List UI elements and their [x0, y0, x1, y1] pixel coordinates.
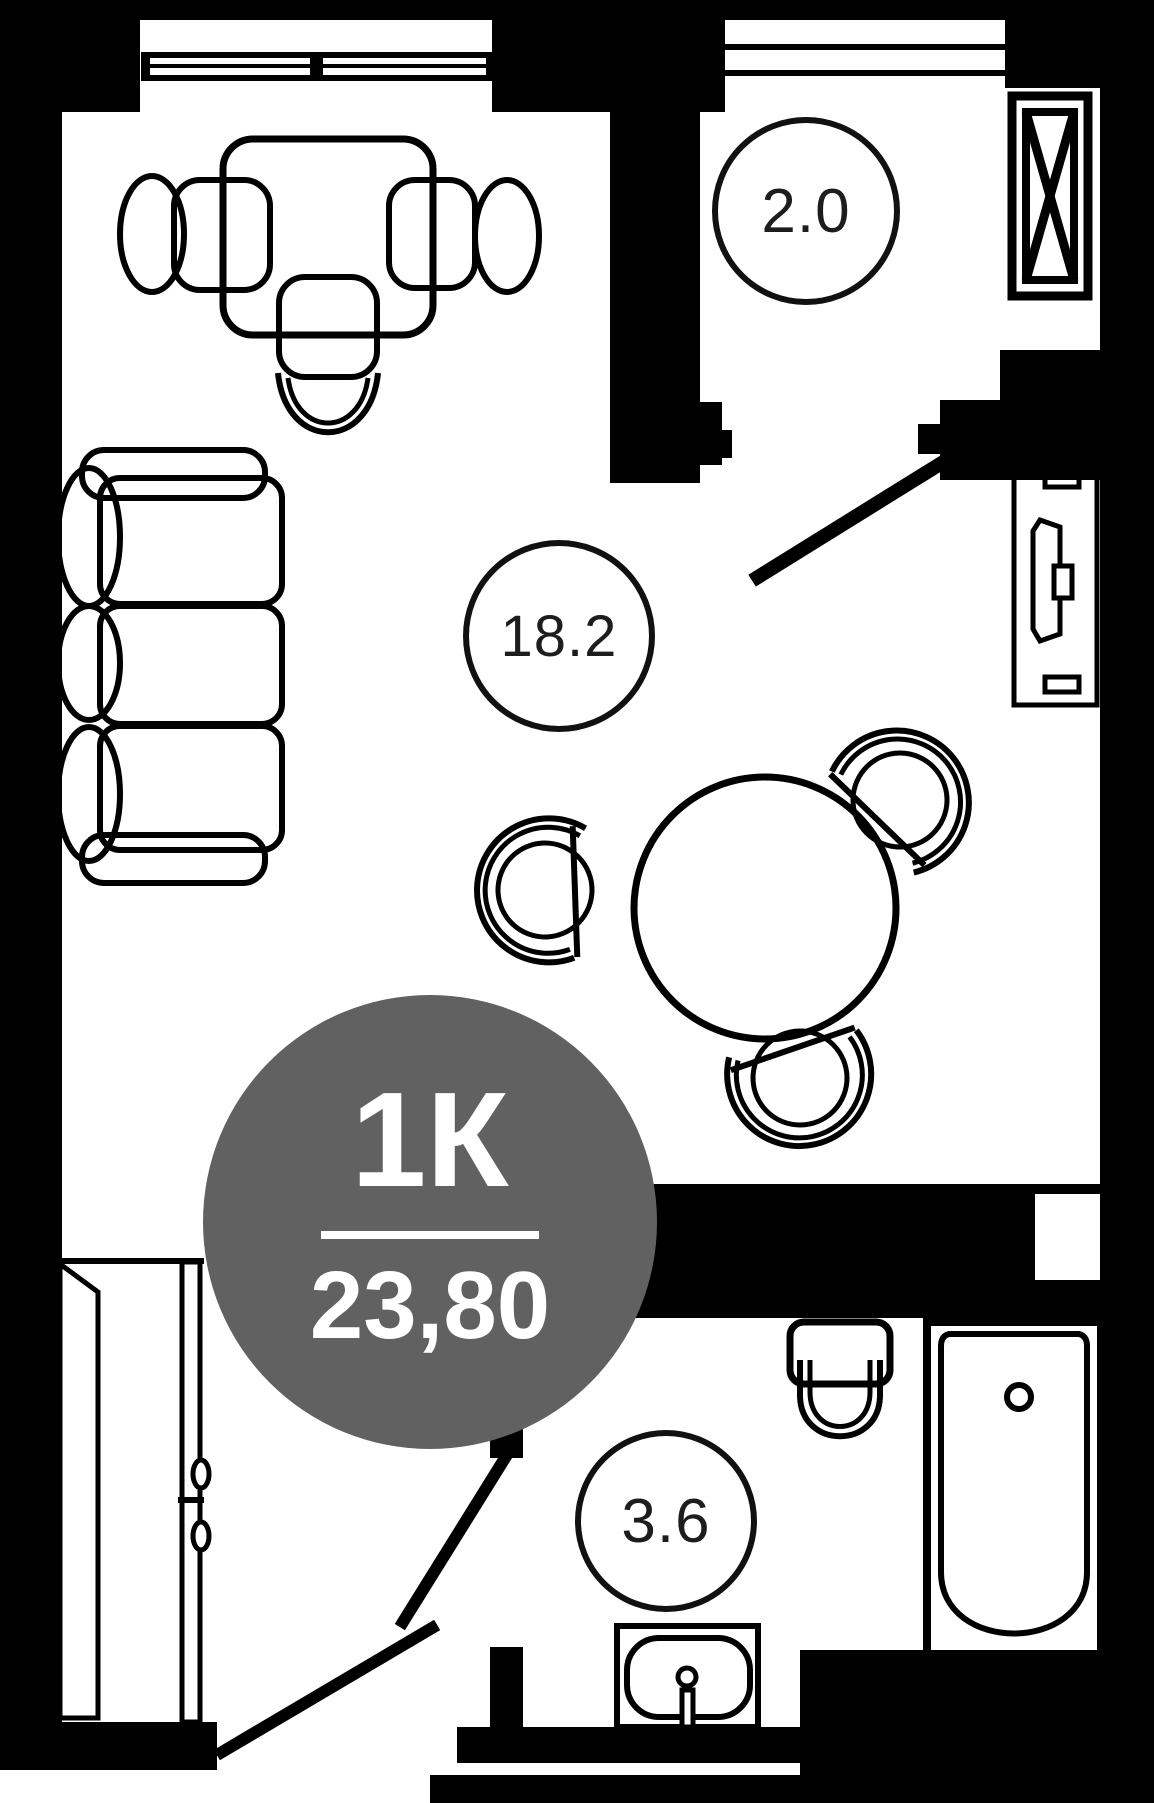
wall-above-window — [140, 0, 495, 20]
wardrobe-icon — [58, 1258, 209, 1722]
wall-top-left-corner — [0, 0, 140, 112]
badge-divider — [321, 1231, 539, 1239]
bathroom-area-value: 3.6 — [621, 1486, 710, 1557]
balcony-area-value: 2.0 — [761, 176, 850, 247]
bathroom-area-label: 3.6 — [575, 1430, 757, 1612]
sofa-icon — [58, 450, 282, 883]
wall-bathroom-top-lower — [600, 1280, 1100, 1318]
balcony-area-label: 2.0 — [712, 117, 900, 305]
sink-icon — [617, 1626, 758, 1727]
bathtub-icon — [927, 1322, 1101, 1663]
wall-balcony-door-knob — [918, 424, 942, 454]
wall-divider-notch — [722, 430, 732, 458]
wall-bottom-left — [0, 1722, 217, 1770]
balcony-door-leaf — [758, 464, 940, 577]
wall-left — [0, 110, 62, 1770]
wall-divider-step — [700, 402, 722, 465]
wall-balcony-parapet-top — [725, 0, 1005, 20]
wall-bathroom-top-edge-line — [1035, 1184, 1100, 1194]
floor-plan: 2.0 18.2 3.6 1К 23,80 — [0, 0, 1154, 1803]
apartment-badge: 1К 23,80 — [203, 995, 657, 1449]
entry-door-leaf — [222, 1628, 432, 1752]
living-room-area-value: 18.2 — [501, 603, 618, 670]
balcony-window — [725, 44, 1005, 76]
toilet-icon — [790, 1322, 890, 1436]
apartment-type: 1К — [203, 1065, 657, 1215]
wall-divider-living-balcony — [610, 0, 700, 483]
wall-bottom-middle — [457, 1727, 800, 1763]
living-room-area-label: 18.2 — [463, 540, 655, 732]
ventilation-shaft-icon — [1012, 96, 1088, 296]
wall-bathroom-top-upper — [640, 1184, 1035, 1280]
apartment-total-area: 23,80 — [203, 1251, 657, 1361]
wall-bottom-right-mass — [800, 1650, 1154, 1803]
wall-right — [1100, 0, 1154, 1803]
tv-console-icon — [1014, 467, 1097, 705]
bathroom-door-leaf — [403, 1458, 505, 1622]
window — [141, 52, 495, 81]
desk-with-chairs-icon — [120, 139, 539, 432]
wall-bathroom-left-stub — [490, 1647, 523, 1727]
